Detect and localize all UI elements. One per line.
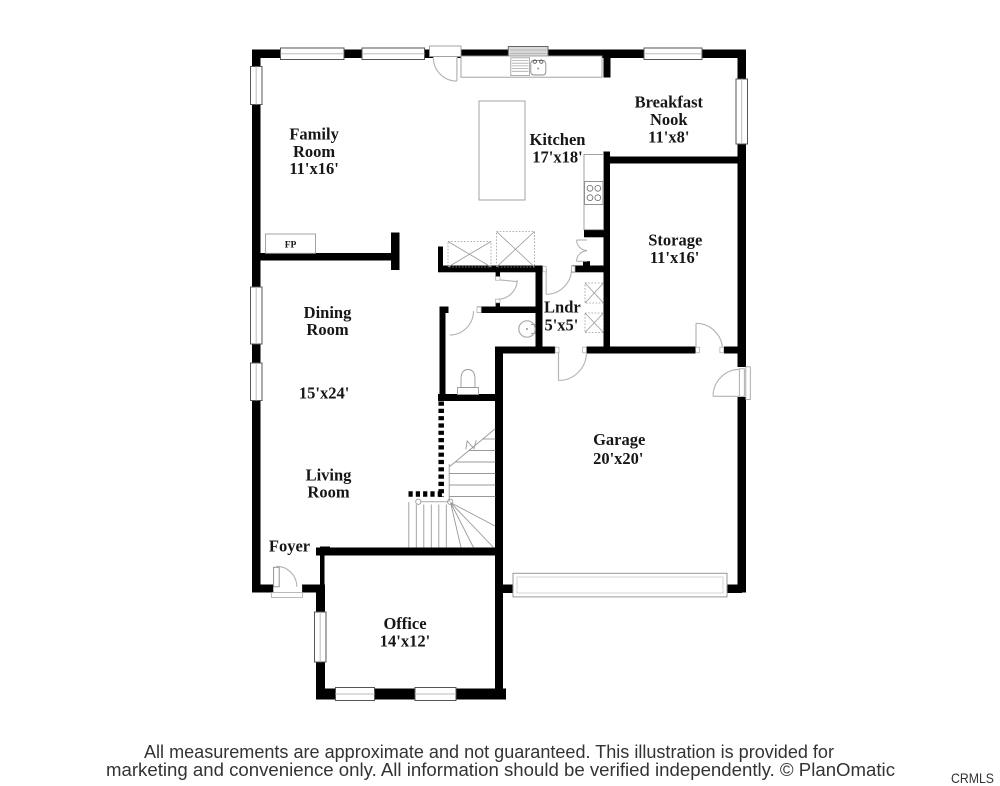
svg-text:Breakfast: Breakfast (635, 93, 704, 112)
svg-text:Dining: Dining (304, 303, 352, 322)
svg-text:Room: Room (306, 320, 348, 339)
svg-text:Lndr: Lndr (544, 297, 581, 316)
svg-text:Room: Room (293, 142, 335, 161)
svg-text:Foyer: Foyer (269, 537, 310, 556)
svg-text:marketing and convenience only: marketing and convenience only. All info… (106, 760, 895, 780)
svg-text:Office: Office (383, 614, 426, 633)
svg-text:15'x24': 15'x24' (299, 384, 349, 403)
svg-text:11'x16': 11'x16' (289, 159, 339, 178)
svg-text:CRMLS: CRMLS (951, 770, 994, 786)
svg-text:Garage: Garage (593, 430, 645, 449)
svg-text:11'x8': 11'x8' (648, 127, 689, 146)
svg-text:All measurements are approxima: All measurements are approximate and not… (144, 742, 834, 762)
svg-text:14'x12': 14'x12' (380, 631, 430, 650)
svg-text:Living: Living (306, 465, 353, 484)
svg-text:11'x16': 11'x16' (650, 248, 700, 267)
svg-text:Storage: Storage (648, 231, 702, 250)
svg-text:5'x5': 5'x5' (544, 315, 578, 334)
svg-text:20'x20': 20'x20' (593, 449, 643, 468)
svg-text:Kitchen: Kitchen (530, 130, 586, 149)
svg-text:17'x18': 17'x18' (532, 147, 582, 166)
svg-text:Family: Family (289, 125, 339, 144)
svg-text:FP: FP (285, 241, 297, 251)
svg-text:Room: Room (307, 483, 349, 502)
svg-text:Nook: Nook (650, 110, 688, 129)
